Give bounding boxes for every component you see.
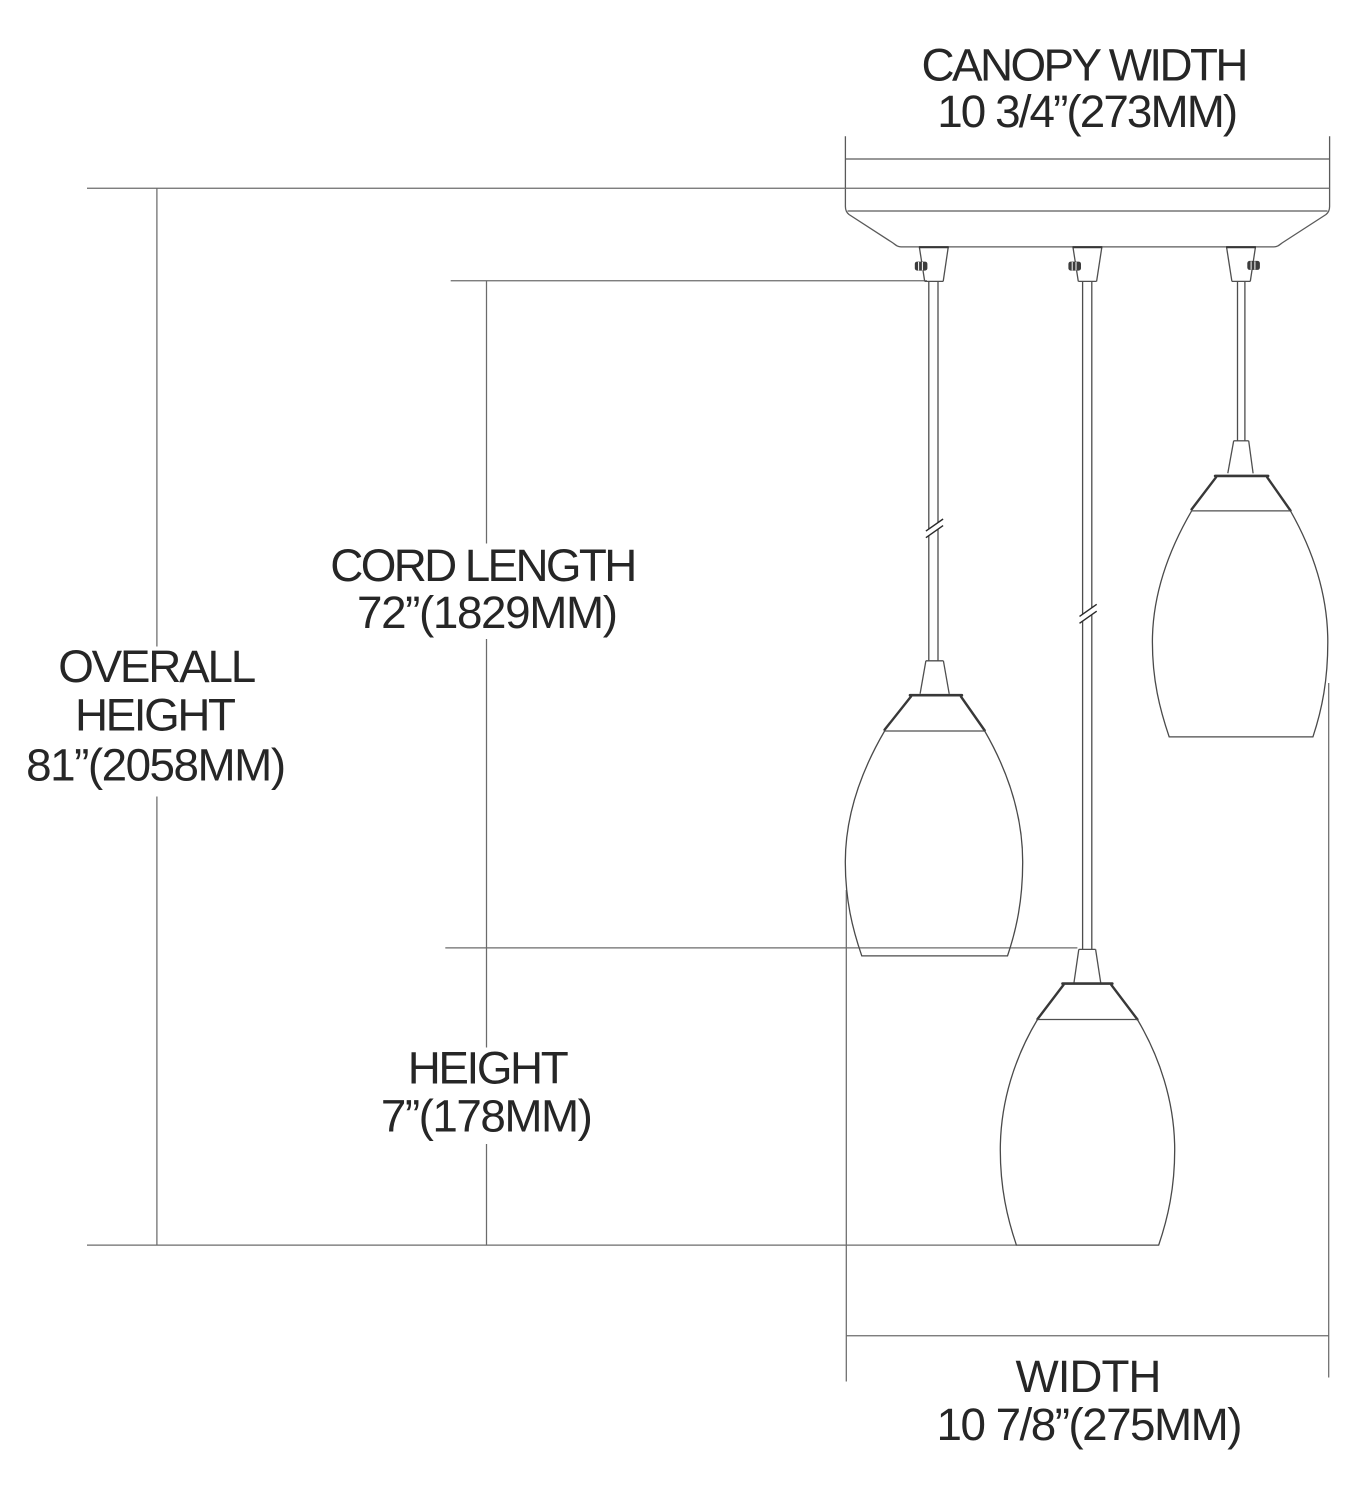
svg-text:81”(2058MM): 81”(2058MM) [26, 740, 286, 791]
svg-text:10 3/4”(273MM): 10 3/4”(273MM) [937, 86, 1238, 137]
svg-text:CANOPY WIDTH: CANOPY WIDTH [922, 39, 1249, 90]
svg-text:10 7/8”(275MM): 10 7/8”(275MM) [937, 1399, 1243, 1450]
svg-text:OVERALL: OVERALL [58, 641, 256, 692]
svg-text:CORD LENGTH: CORD LENGTH [330, 540, 637, 591]
svg-text:72”(1829MM): 72”(1829MM) [357, 587, 618, 638]
svg-text:HEIGHT: HEIGHT [408, 1043, 569, 1094]
svg-text:WIDTH: WIDTH [1016, 1351, 1162, 1402]
svg-text:HEIGHT: HEIGHT [75, 690, 236, 741]
svg-text:7”(178MM): 7”(178MM) [381, 1091, 593, 1142]
